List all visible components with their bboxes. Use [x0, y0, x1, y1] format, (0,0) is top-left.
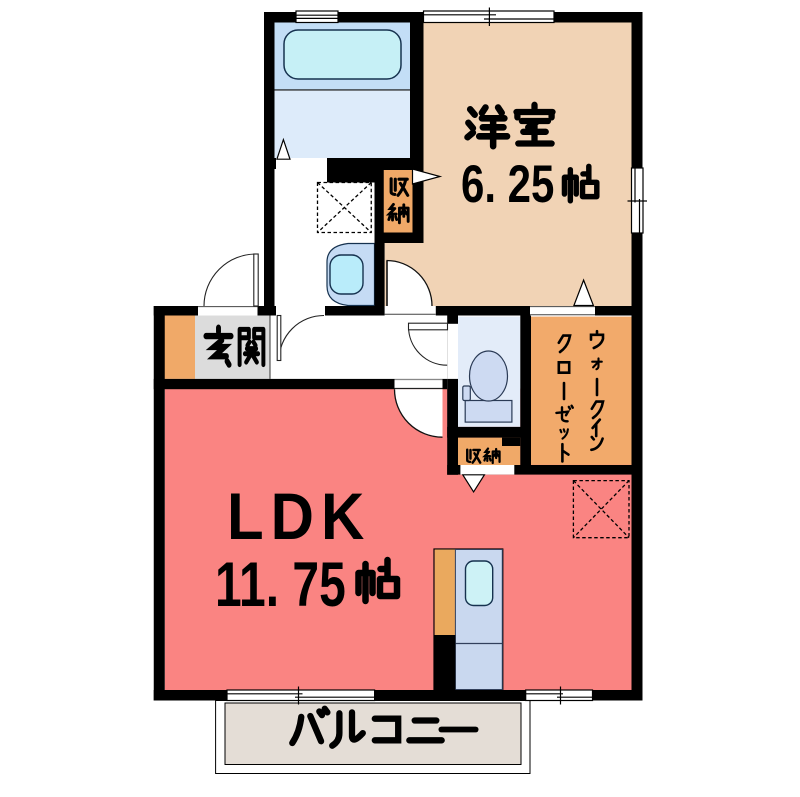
- svg-text:6. 25: 6. 25: [461, 156, 554, 215]
- svg-text:LDK: LDK: [227, 480, 371, 553]
- svg-text:11. 75: 11. 75: [215, 549, 346, 620]
